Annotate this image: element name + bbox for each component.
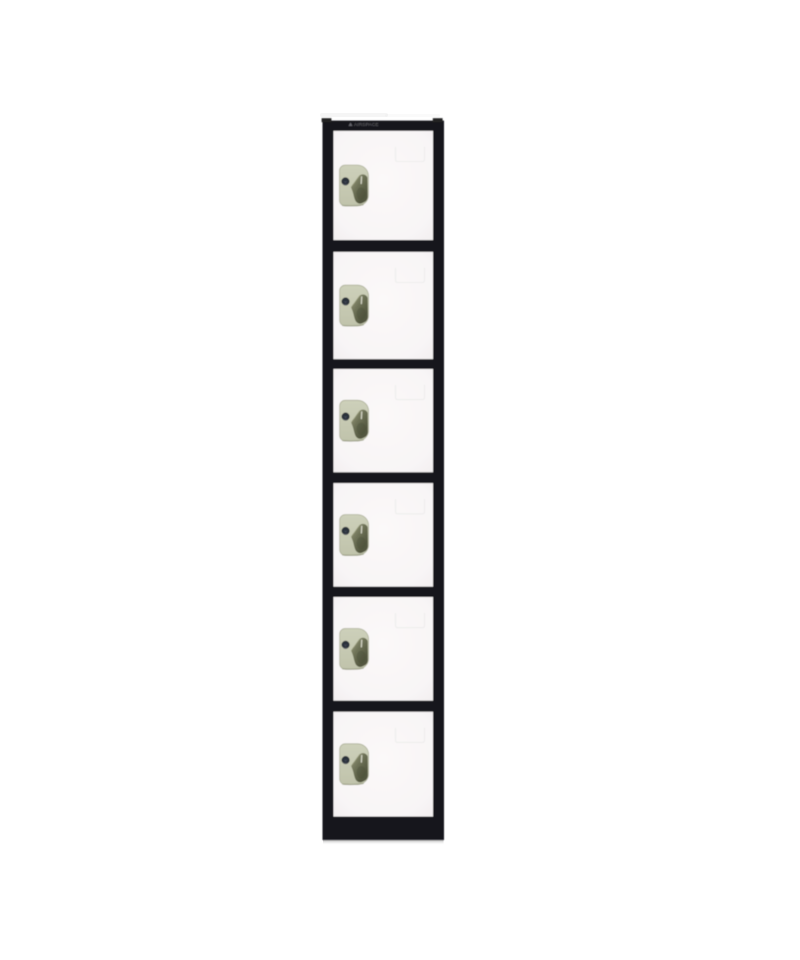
svg-text:AIRSPACE: AIRSPACE xyxy=(354,122,379,128)
